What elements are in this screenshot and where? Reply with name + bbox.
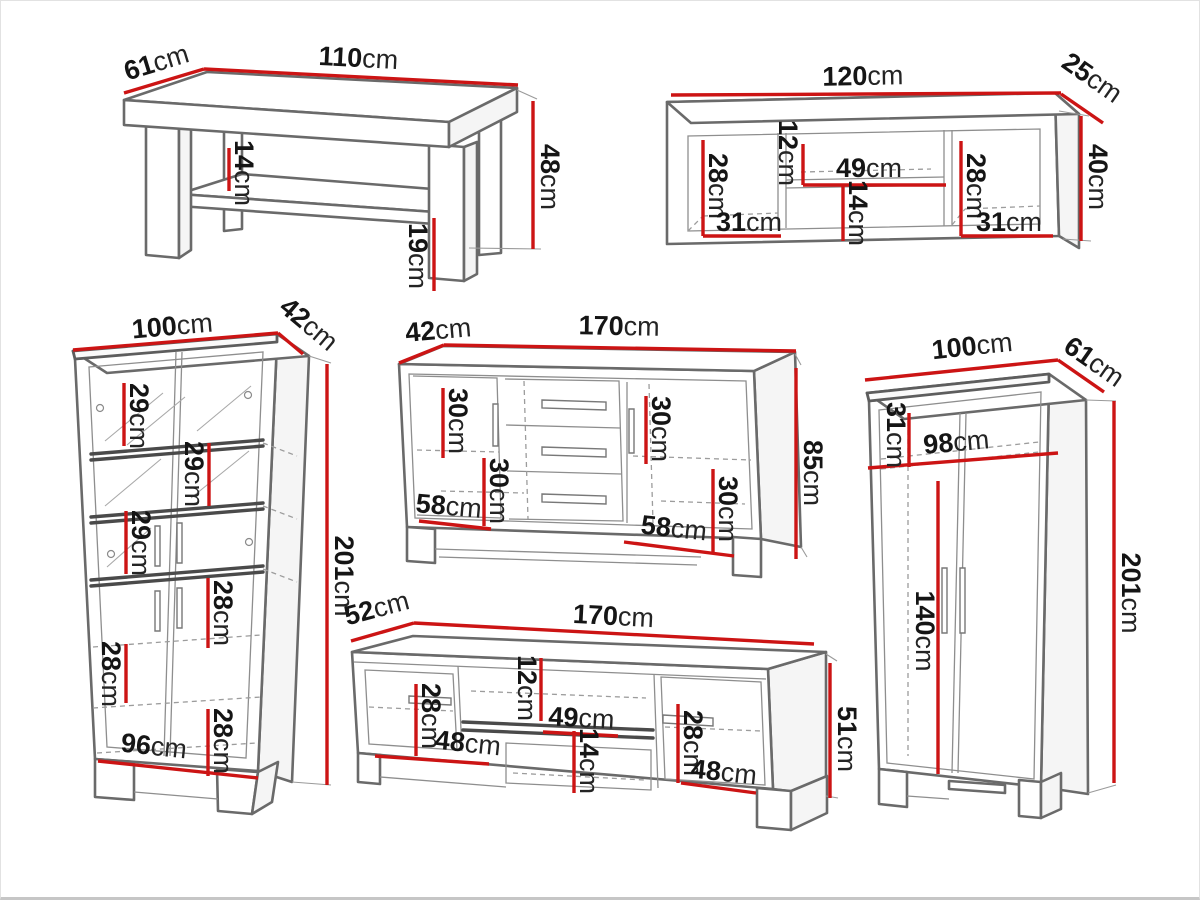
dim-coffee-height: 48cm xyxy=(535,144,565,210)
dim-sideboard-width: 170cm xyxy=(578,310,660,341)
dim-tv-mid-bottom: 14cm xyxy=(574,728,604,794)
dim-wardrobe-height: 201cm xyxy=(1116,552,1146,633)
dim-sideboard-right-width: 58cm xyxy=(640,510,709,547)
dim-tv-height: 51cm xyxy=(832,706,862,772)
wardrobe: 100cm 61cm 201cm 31cm 98cm 140cm xyxy=(865,327,1146,818)
dim-coffee-shelf-gap: 14cm xyxy=(229,140,259,206)
diagram-svg: 61cm 110cm 48cm 14cm 19cm xyxy=(1,1,1199,897)
wall-shelf: 120cm 25cm 40cm 28cm 31cm 12cm 49cm 14cm… xyxy=(667,46,1128,248)
sideboard-drawing xyxy=(399,346,807,577)
dim-cabinet-shelf-2: 29cm xyxy=(179,441,209,507)
dim-wardrobe-hanging: 140cm xyxy=(910,590,940,671)
tv-stand: 52cm 170cm 51cm 28cm 48cm 12cm 49cm 14cm… xyxy=(341,585,862,830)
dim-cabinet-shelf-5: 28cm xyxy=(96,641,126,707)
coffee-table: 61cm 110cm 48cm 14cm 19cm xyxy=(120,38,565,291)
dim-sideboard-left-width: 58cm xyxy=(415,488,483,524)
dim-coffee-clearance: 19cm xyxy=(403,223,433,289)
display-cabinet-drawing xyxy=(73,334,331,814)
dim-cabinet-shelf-6: 28cm xyxy=(208,708,238,774)
dim-wardrobe-width: 100cm xyxy=(930,327,1014,365)
sideboard: 42cm 170cm 85cm 30cm 30cm 58cm 30cm 30cm… xyxy=(399,310,828,577)
dim-shelf-right-inner-width: 31cm xyxy=(976,207,1042,237)
coffee-table-drawing xyxy=(124,72,541,281)
dim-cabinet-shelf-3: 29cm xyxy=(126,510,156,576)
dim-sideboard-depth: 42cm xyxy=(404,312,472,348)
dim-cabinet-shelf-4: 28cm xyxy=(208,580,238,646)
dim-shelf-height: 40cm xyxy=(1083,144,1113,210)
dim-tv-mid-top: 12cm xyxy=(512,655,542,721)
dim-coffee-width: 110cm xyxy=(318,41,399,75)
dim-sideboard-right-top: 30cm xyxy=(646,396,676,462)
dim-shelf-left-inner-width: 31cm xyxy=(716,207,782,237)
dim-wardrobe-top-shelf: 31cm xyxy=(881,402,911,468)
dim-sideboard-height: 85cm xyxy=(798,440,828,506)
dim-tv-width: 170cm xyxy=(572,599,655,633)
dim-sideboard-left-top: 30cm xyxy=(443,388,473,454)
dim-shelf-mid-width: 49cm xyxy=(836,153,902,183)
furniture-dimension-diagram: 61cm 110cm 48cm 14cm 19cm xyxy=(0,0,1200,900)
dim-wardrobe-inner-width: 98cm xyxy=(922,424,990,460)
dim-coffee-depth: 61cm xyxy=(120,38,192,86)
display-cabinet: 100cm 42cm 201cm 29cm 29cm 29cm 28cm 28c… xyxy=(73,291,359,814)
dim-sideboard-left-bottom: 30cm xyxy=(484,458,514,524)
dim-sideboard-right-bottom: 30cm xyxy=(713,476,743,542)
dim-shelf-mid-bottom: 14cm xyxy=(843,180,873,246)
dim-cabinet-shelf-1: 29cm xyxy=(124,383,154,449)
dim-shelf-width: 120cm xyxy=(822,60,904,91)
dim-shelf-mid-top: 12cm xyxy=(773,120,803,186)
